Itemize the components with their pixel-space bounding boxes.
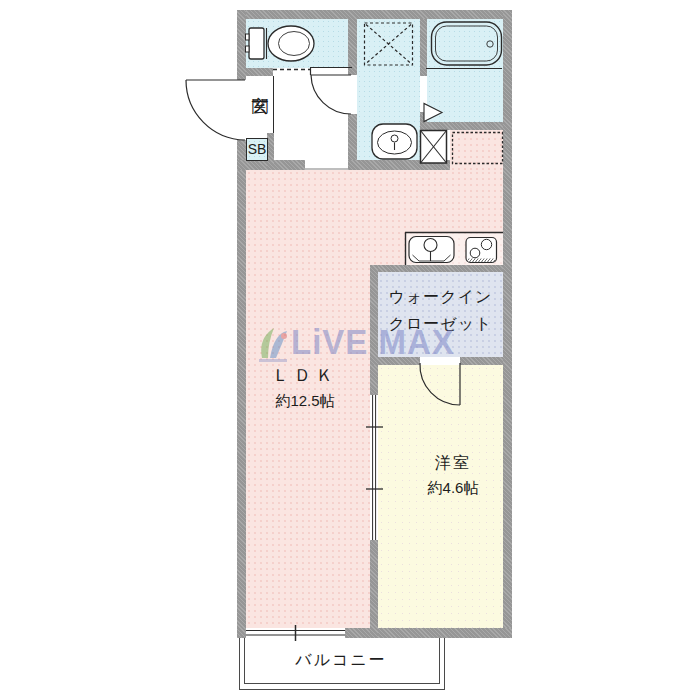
washing-machine-pan-icon [421,131,447,164]
ldk-name: ＬＤＫ [250,366,360,386]
opening-entrance [237,80,246,140]
room-ldk-fridge-nook [450,130,503,170]
ldk-size: 約12.5帖 [250,392,360,410]
opening-balcony-window [246,628,345,638]
opening-washroom-door [348,75,357,114]
wall-sb-filler [267,133,274,170]
shoebox-label: SB [248,141,267,158]
room-washroom [357,19,420,160]
room-hall [273,76,348,170]
balcony-label: バルコニー [239,650,443,669]
wall-right [503,10,512,638]
wall-closet-top [370,265,503,272]
wall-washroom-bottom [348,160,450,170]
bedroom-size: 約4.6帖 [398,479,508,497]
wall-under-toilet [246,68,273,76]
opening-sliding-door [370,395,378,540]
wall-bedroom-top-right [460,357,503,365]
shoebox: SB [246,138,268,161]
wall-left-lower [237,140,246,638]
livemax-watermark-text: LiVE MAX [291,323,455,363]
wall-hall-washroom-lower [348,114,357,160]
wall-left-upper [237,10,246,80]
opening-bathroom-door [420,76,427,112]
room-toilet [246,19,348,68]
wall-hall-washroom-upper [348,19,357,75]
genkan-label: 玄関 [249,83,269,89]
livemax-watermark: LiVE MAX [253,324,455,366]
livemax-logo-icon [253,324,291,366]
wall-bath-bottom [420,122,503,130]
room-bathroom [427,19,503,122]
wic-label-line1: ウォークイン [378,287,503,306]
kitchen-counter-area [405,233,503,265]
bedroom-name: 洋室 [398,453,508,472]
wall-washroom-bath-lower [420,112,427,122]
wall-top [237,10,512,19]
floor-plan: SB [0,0,700,700]
wall-bedroom-left-lower [370,540,378,638]
wall-bedroom-left-upper [370,365,378,395]
wall-washroom-bath-upper [420,19,427,76]
